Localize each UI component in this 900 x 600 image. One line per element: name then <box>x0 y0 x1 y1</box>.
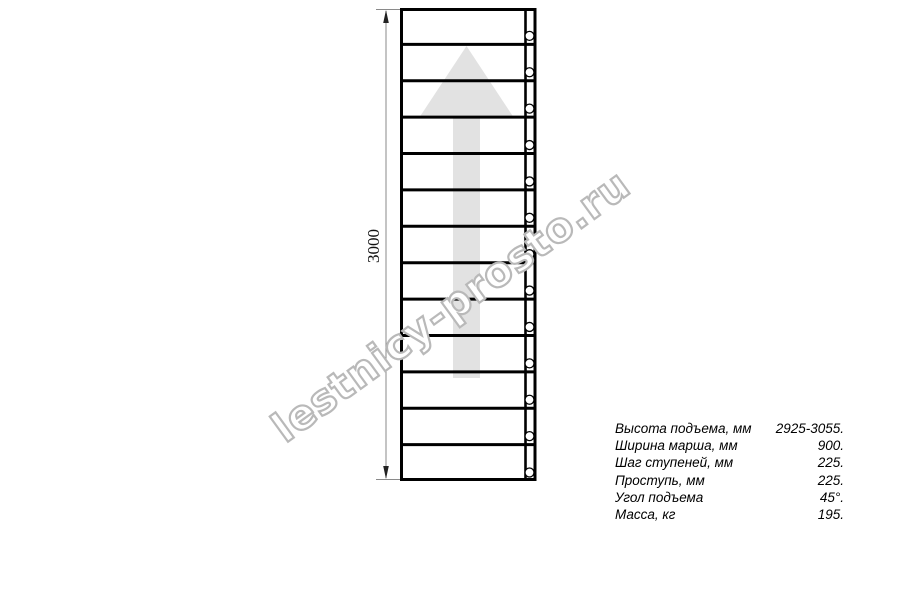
spec-label: Высота подъема, мм <box>615 420 751 437</box>
fastener-hole <box>525 432 534 441</box>
dimension-arrowhead-down-icon <box>383 466 389 479</box>
fastener-hole <box>525 286 534 295</box>
spec-value: 225. <box>818 454 844 471</box>
spec-value: 225. <box>818 472 844 489</box>
fastener-hole <box>525 395 534 404</box>
fastener-hole <box>525 68 534 77</box>
spec-value: 900. <box>818 437 844 454</box>
spec-row-angle: Угол подъема 45°. <box>615 489 844 506</box>
spec-row-height: Высота подъема, мм 2925-3055. <box>615 420 844 437</box>
spec-label: Угол подъема <box>615 489 703 506</box>
spec-row-step-pitch: Шаг ступеней, мм 225. <box>615 454 844 471</box>
fastener-hole <box>525 31 534 40</box>
dimension: 3000 <box>364 10 400 480</box>
fastener-hole <box>525 322 534 331</box>
specs-table: Высота подъема, мм 2925-3055. Ширина мар… <box>615 420 844 523</box>
spec-row-tread-depth: Проступь, мм 225. <box>615 472 844 489</box>
dimension-label: 3000 <box>364 229 383 263</box>
spec-label: Проступь, мм <box>615 472 705 489</box>
drawing-canvas: 3000 lestnicy-prosto.ru Высота подъема, … <box>0 0 900 600</box>
fastener-hole <box>525 359 534 368</box>
spec-row-mass: Масса, кг 195. <box>615 506 844 523</box>
spec-label: Масса, кг <box>615 506 675 523</box>
spec-label: Ширина марша, мм <box>615 437 738 454</box>
fastener-hole <box>525 177 534 186</box>
fastener-hole <box>525 141 534 150</box>
spec-value: 2925-3055. <box>776 420 844 437</box>
fastener-hole <box>525 468 534 477</box>
spec-value: 195. <box>818 506 844 523</box>
spec-label: Шаг ступеней, мм <box>615 454 733 471</box>
fastener-hole <box>525 104 534 113</box>
spec-row-width: Ширина марша, мм 900. <box>615 437 844 454</box>
spec-value: 45°. <box>820 489 844 506</box>
dimension-arrowhead-up-icon <box>383 10 389 23</box>
